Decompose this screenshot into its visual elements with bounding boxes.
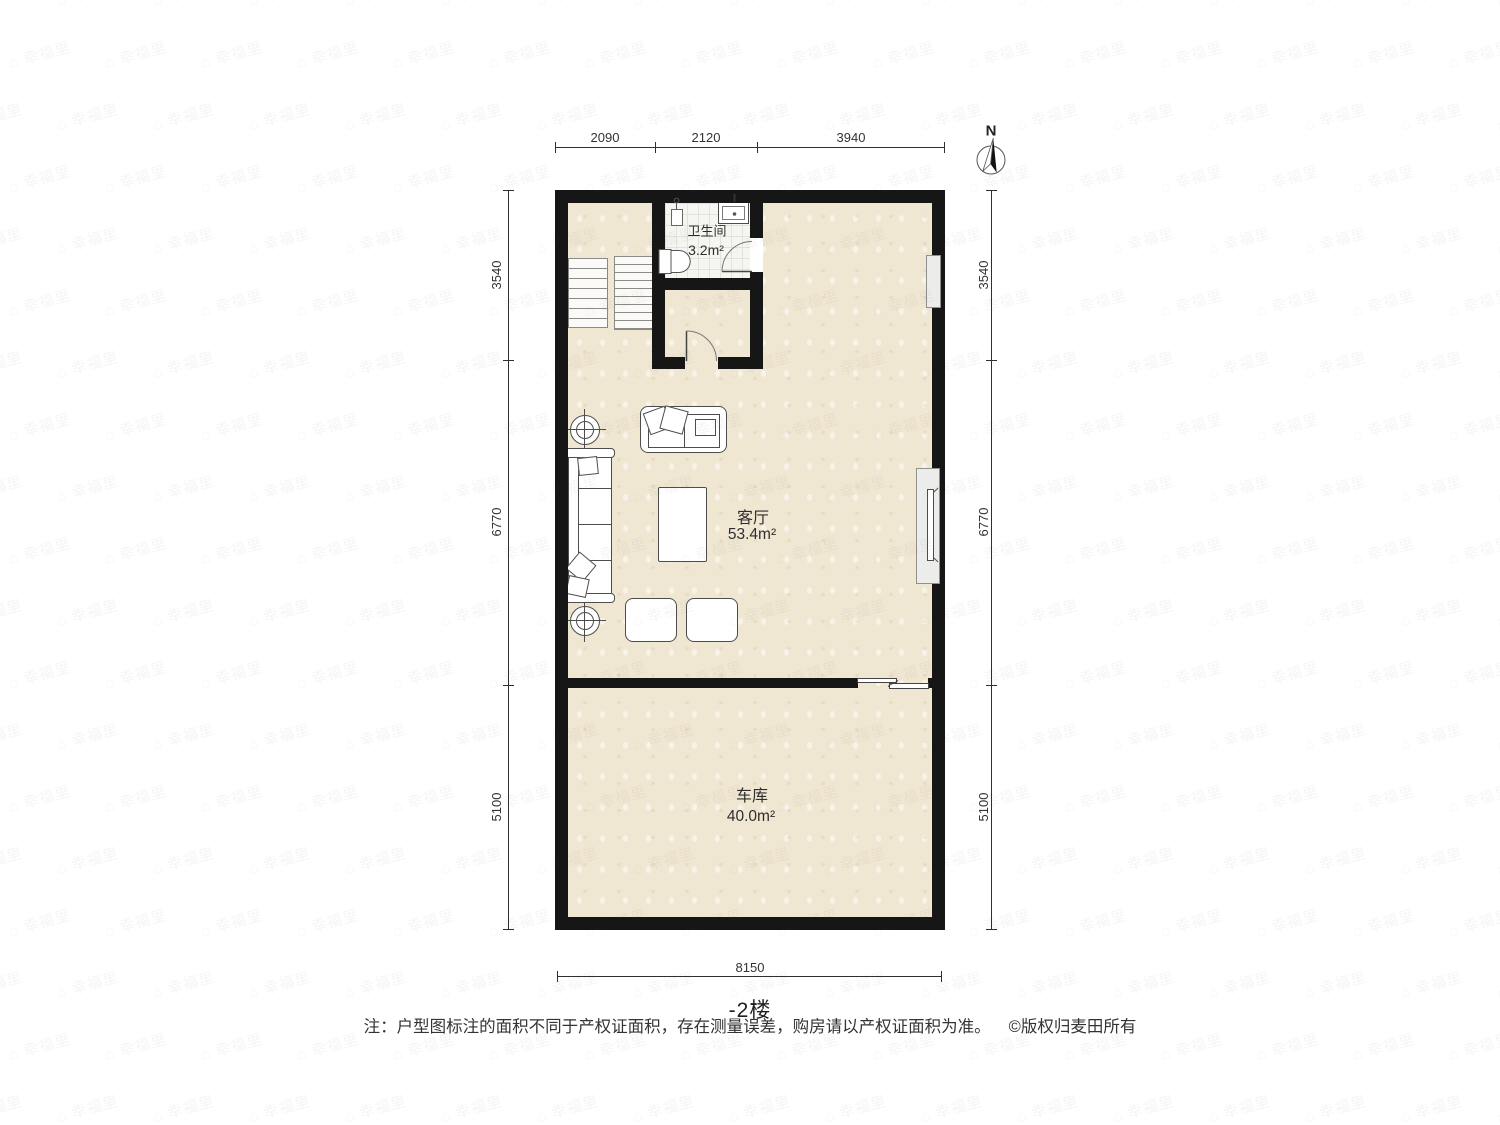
watermark-item: ⌂ 幸福里 bbox=[1062, 284, 1129, 321]
watermark-item: ⌂ 幸福里 bbox=[966, 408, 1033, 445]
watermark-item: ⌂ 幸福里 bbox=[1398, 1090, 1465, 1125]
watermark-item: ⌂ 幸福里 bbox=[486, 656, 553, 693]
room-label-bathroom: 卫生间 bbox=[687, 221, 726, 240]
watermark-item: ⌂ 幸福里 bbox=[342, 346, 409, 383]
watermark-item: ⌂ 幸福里 bbox=[1158, 656, 1225, 693]
floorplan-page: 2090 2120 3940 3540 6770 5100 3540 6770 … bbox=[0, 0, 1500, 1125]
room-area-bathroom: 3.2m² bbox=[688, 242, 724, 258]
watermark-item: ⌂ 幸福里 bbox=[1110, 0, 1177, 11]
watermark-item: ⌂ 幸福里 bbox=[918, 0, 985, 11]
watermark-item: ⌂ 幸福里 bbox=[486, 160, 553, 197]
watermark-item: ⌂ 幸福里 bbox=[1254, 408, 1321, 445]
watermark-item: ⌂ 幸福里 bbox=[1062, 36, 1129, 73]
dim-label: 8150 bbox=[736, 960, 765, 975]
dim-tick bbox=[503, 685, 514, 686]
watermark-item: ⌂ 幸福里 bbox=[1302, 594, 1369, 631]
watermark-item: ⌂ 幸福里 bbox=[726, 0, 793, 11]
watermark-item: ⌂ 幸福里 bbox=[1398, 842, 1465, 879]
watermark-item: ⌂ 幸福里 bbox=[150, 470, 217, 507]
dim-label: 2090 bbox=[591, 130, 620, 145]
watermark-item: ⌂ 幸福里 bbox=[54, 346, 121, 383]
watermark-item: ⌂ 幸福里 bbox=[150, 842, 217, 879]
watermark-item: ⌂ 幸福里 bbox=[1110, 594, 1177, 631]
watermark-item: ⌂ 幸福里 bbox=[6, 284, 73, 321]
watermark-item: ⌂ 幸福里 bbox=[1254, 904, 1321, 941]
dimension-line bbox=[508, 190, 509, 930]
watermark-item: ⌂ 幸福里 bbox=[1014, 1090, 1081, 1125]
wall-bathroom-east-upper bbox=[750, 203, 763, 238]
watermark-item: ⌂ 幸福里 bbox=[1494, 346, 1500, 383]
watermark-item: ⌂ 幸福里 bbox=[1206, 842, 1273, 879]
dim-label: 3540 bbox=[489, 245, 503, 305]
tv-screen bbox=[927, 489, 934, 561]
watermark-item: ⌂ 幸福里 bbox=[1158, 904, 1225, 941]
watermark-item: ⌂ 幸福里 bbox=[246, 470, 313, 507]
watermark-item: ⌂ 幸福里 bbox=[486, 408, 553, 445]
watermark-item: ⌂ 幸福里 bbox=[342, 98, 409, 135]
watermark-item: ⌂ 幸福里 bbox=[1350, 160, 1417, 197]
sofa-pillow bbox=[565, 575, 589, 598]
watermark-item: ⌂ 幸福里 bbox=[342, 718, 409, 755]
watermark-item: ⌂ 幸福里 bbox=[390, 284, 457, 321]
watermark-item: ⌂ 幸福里 bbox=[438, 842, 505, 879]
watermark-item: ⌂ 幸福里 bbox=[1110, 470, 1177, 507]
watermark-item: ⌂ 幸福里 bbox=[342, 222, 409, 259]
watermark-item: ⌂ 幸福里 bbox=[1110, 718, 1177, 755]
watermark-item: ⌂ 幸福里 bbox=[0, 470, 25, 507]
watermark-item: ⌂ 幸福里 bbox=[1494, 98, 1500, 135]
watermark-item: ⌂ 幸福里 bbox=[774, 36, 841, 73]
watermark-item: ⌂ 幸福里 bbox=[1206, 594, 1273, 631]
watermark-item: ⌂ 幸福里 bbox=[486, 36, 553, 73]
watermark-item: ⌂ 幸福里 bbox=[1350, 532, 1417, 569]
watermark-item: ⌂ 幸福里 bbox=[1494, 222, 1500, 259]
wall-smallroom-bottom-right bbox=[718, 357, 763, 369]
watermark-item: ⌂ 幸福里 bbox=[342, 594, 409, 631]
watermark-item: ⌂ 幸福里 bbox=[150, 1090, 217, 1125]
wall-smallroom-bottom-left bbox=[652, 357, 685, 369]
watermark-item: ⌂ 幸福里 bbox=[438, 1090, 505, 1125]
watermark-item: ⌂ 幸福里 bbox=[390, 532, 457, 569]
watermark-item: ⌂ 幸福里 bbox=[1350, 656, 1417, 693]
watermark-item: ⌂ 幸福里 bbox=[1446, 36, 1500, 73]
watermark-item: ⌂ 幸福里 bbox=[0, 842, 25, 879]
watermark-item: ⌂ 幸福里 bbox=[918, 1090, 985, 1125]
watermark-item: ⌂ 幸福里 bbox=[246, 718, 313, 755]
watermark-item: ⌂ 幸福里 bbox=[582, 36, 649, 73]
watermark-item: ⌂ 幸福里 bbox=[1398, 222, 1465, 259]
watermark-item: ⌂ 幸福里 bbox=[1302, 842, 1369, 879]
watermark-item: ⌂ 幸福里 bbox=[54, 1090, 121, 1125]
dimension-left: 3540 6770 5100 bbox=[502, 190, 514, 930]
dim-tick bbox=[986, 929, 997, 930]
dim-label: 5100 bbox=[976, 777, 990, 837]
watermark-item: ⌂ 幸福里 bbox=[1446, 160, 1500, 197]
watermark-item: ⌂ 幸福里 bbox=[198, 780, 265, 817]
watermark-item: ⌂ 幸福里 bbox=[54, 718, 121, 755]
watermark-item: ⌂ 幸福里 bbox=[294, 36, 361, 73]
watermark-item: ⌂ 幸福里 bbox=[1158, 284, 1225, 321]
watermark-item: ⌂ 幸福里 bbox=[1302, 222, 1369, 259]
watermark-item: ⌂ 幸福里 bbox=[246, 1090, 313, 1125]
watermark-item: ⌂ 幸福里 bbox=[0, 98, 25, 135]
watermark-item: ⌂ 幸福里 bbox=[294, 904, 361, 941]
watermark-item: ⌂ 幸福里 bbox=[678, 36, 745, 73]
watermark-item: ⌂ 幸福里 bbox=[6, 656, 73, 693]
watermark-item: ⌂ 幸福里 bbox=[438, 346, 505, 383]
watermark-item: ⌂ 幸福里 bbox=[1110, 842, 1177, 879]
watermark-item: ⌂ 幸福里 bbox=[1110, 1090, 1177, 1125]
wall-outer-bottom bbox=[555, 917, 945, 930]
sofa-headrest-cushion bbox=[577, 456, 599, 476]
dim-tick bbox=[944, 142, 945, 153]
watermark-item: ⌂ 幸福里 bbox=[342, 842, 409, 879]
watermark-item: ⌂ 幸福里 bbox=[102, 532, 169, 569]
watermark-item: ⌂ 幸福里 bbox=[1398, 594, 1465, 631]
watermark-item: ⌂ 幸福里 bbox=[1302, 718, 1369, 755]
watermark-item: ⌂ 幸福里 bbox=[1302, 98, 1369, 135]
sliding-door-panel bbox=[889, 683, 929, 689]
watermark-item: ⌂ 幸福里 bbox=[0, 0, 25, 11]
ottoman bbox=[686, 598, 738, 642]
watermark-item: ⌂ 幸福里 bbox=[6, 904, 73, 941]
watermark-item: ⌂ 幸福里 bbox=[246, 98, 313, 135]
dim-label: 6770 bbox=[489, 492, 503, 552]
watermark-item: ⌂ 幸福里 bbox=[1446, 408, 1500, 445]
watermark-item: ⌂ 幸福里 bbox=[6, 160, 73, 197]
watermark-item: ⌂ 幸福里 bbox=[102, 904, 169, 941]
watermark-item: ⌂ 幸福里 bbox=[102, 160, 169, 197]
watermark-item: ⌂ 幸福里 bbox=[1302, 346, 1369, 383]
dim-label: 6770 bbox=[976, 492, 990, 552]
dim-tick bbox=[503, 360, 514, 361]
watermark-item: ⌂ 幸福里 bbox=[390, 904, 457, 941]
dim-tick bbox=[941, 971, 942, 982]
watermark-item: ⌂ 幸福里 bbox=[966, 160, 1033, 197]
dim-label: 2120 bbox=[692, 130, 721, 145]
watermark-item: ⌂ 幸福里 bbox=[198, 284, 265, 321]
watermark-item: ⌂ 幸福里 bbox=[1254, 656, 1321, 693]
watermark-item: ⌂ 幸福里 bbox=[1398, 98, 1465, 135]
watermark-item: ⌂ 幸福里 bbox=[1302, 470, 1369, 507]
watermark-item: ⌂ 幸福里 bbox=[294, 532, 361, 569]
watermark-item: ⌂ 幸福里 bbox=[966, 36, 1033, 73]
watermark-item: ⌂ 幸福里 bbox=[1254, 160, 1321, 197]
watermark-item: ⌂ 幸福里 bbox=[1158, 780, 1225, 817]
watermark-item: ⌂ 幸福里 bbox=[1014, 842, 1081, 879]
dim-tick bbox=[757, 142, 758, 153]
watermark-item: ⌂ 幸福里 bbox=[0, 718, 25, 755]
watermark-item: ⌂ 幸福里 bbox=[1014, 0, 1081, 11]
watermark-item: ⌂ 幸福里 bbox=[486, 904, 553, 941]
room-label-living: 客厅 bbox=[737, 504, 769, 528]
watermark-item: ⌂ 幸福里 bbox=[294, 408, 361, 445]
watermark-item: ⌂ 幸福里 bbox=[102, 408, 169, 445]
dim-tick bbox=[557, 971, 558, 982]
watermark-item: ⌂ 幸福里 bbox=[630, 0, 697, 11]
watermark-item: ⌂ 幸福里 bbox=[1062, 780, 1129, 817]
watermark-item: ⌂ 幸福里 bbox=[1494, 594, 1500, 631]
dim-tick bbox=[986, 685, 997, 686]
watermark-item: ⌂ 幸福里 bbox=[438, 718, 505, 755]
watermark-item: ⌂ 幸福里 bbox=[1350, 780, 1417, 817]
disclaimer-note: 注：户型图标注的面积不同于产权证面积，存在测量误差，购房请以产权证面积为准。 bbox=[364, 1013, 991, 1037]
dimension-right: 3540 6770 5100 bbox=[985, 190, 997, 930]
watermark-item: ⌂ 幸福里 bbox=[294, 284, 361, 321]
watermark-item: ⌂ 幸福里 bbox=[1446, 284, 1500, 321]
watermark-item: ⌂ 幸福里 bbox=[1206, 718, 1273, 755]
watermark-item: ⌂ 幸福里 bbox=[966, 904, 1033, 941]
shower-fixture bbox=[671, 209, 683, 226]
coffee-table bbox=[658, 487, 707, 562]
watermark-item: ⌂ 幸福里 bbox=[1110, 98, 1177, 135]
footer-note-row: 注：户型图标注的面积不同于产权证面积，存在测量误差，购房请以产权证面积为准。 ©… bbox=[0, 1013, 1500, 1037]
watermark-item: ⌂ 幸福里 bbox=[1062, 408, 1129, 445]
watermark-item: ⌂ 幸福里 bbox=[150, 98, 217, 135]
watermark-item: ⌂ 幸福里 bbox=[0, 222, 25, 259]
watermark-item: ⌂ 幸福里 bbox=[198, 408, 265, 445]
wall-outer-left bbox=[555, 190, 568, 930]
watermark-item: ⌂ 幸福里 bbox=[390, 36, 457, 73]
watermark-item: ⌂ 幸福里 bbox=[438, 594, 505, 631]
side-table-inner-circle bbox=[576, 421, 594, 439]
watermark-item: ⌂ 幸福里 bbox=[1398, 346, 1465, 383]
watermark-item: ⌂ 幸福里 bbox=[246, 346, 313, 383]
dim-tick bbox=[655, 142, 656, 153]
watermark-item: ⌂ 幸福里 bbox=[1398, 0, 1465, 11]
bathroom-door-opening bbox=[750, 238, 763, 272]
watermark-item: ⌂ 幸福里 bbox=[1206, 1090, 1273, 1125]
watermark-item: ⌂ 幸福里 bbox=[54, 222, 121, 259]
watermark-item: ⌂ 幸福里 bbox=[246, 594, 313, 631]
room-area-garage: 40.0m² bbox=[727, 808, 775, 826]
room-area-living: 53.4m² bbox=[728, 526, 776, 544]
watermark-item: ⌂ 幸福里 bbox=[1206, 470, 1273, 507]
dim-label: 3940 bbox=[837, 130, 866, 145]
watermark-item: ⌂ 幸福里 bbox=[102, 780, 169, 817]
wall-niche bbox=[926, 255, 941, 308]
watermark-item: ⌂ 幸福里 bbox=[390, 780, 457, 817]
compass-needle-light bbox=[983, 137, 994, 172]
watermark-item: ⌂ 幸福里 bbox=[150, 222, 217, 259]
watermark-item: ⌂ 幸福里 bbox=[1302, 1090, 1369, 1125]
watermark-item: ⌂ 幸福里 bbox=[1014, 222, 1081, 259]
wall-garage-divider-stub bbox=[928, 678, 945, 688]
watermark-item: ⌂ 幸福里 bbox=[342, 470, 409, 507]
stairs-flight-left bbox=[568, 258, 608, 328]
watermark-item: ⌂ 幸福里 bbox=[54, 0, 121, 11]
watermark-item: ⌂ 幸福里 bbox=[54, 470, 121, 507]
watermark-item: ⌂ 幸福里 bbox=[1254, 36, 1321, 73]
watermark-item: ⌂ 幸福里 bbox=[390, 160, 457, 197]
watermark-item: ⌂ 幸福里 bbox=[1446, 780, 1500, 817]
watermark-item: ⌂ 幸福里 bbox=[1398, 470, 1465, 507]
watermark-item: ⌂ 幸福里 bbox=[246, 222, 313, 259]
loveseat-cushion bbox=[695, 419, 716, 436]
compass-needle bbox=[983, 137, 1000, 172]
dimension-top: 2090 2120 3940 bbox=[555, 130, 945, 154]
dim-label: 5100 bbox=[489, 777, 503, 837]
dimension-line bbox=[555, 147, 945, 148]
wall-smallroom-top bbox=[652, 278, 763, 290]
watermark-item: ⌂ 幸福里 bbox=[198, 532, 265, 569]
dim-tick bbox=[555, 142, 556, 153]
watermark-item: ⌂ 幸福里 bbox=[438, 98, 505, 135]
watermark-item: ⌂ 幸福里 bbox=[150, 346, 217, 383]
wall-garage-divider bbox=[555, 678, 858, 688]
room-label-garage: 车库 bbox=[736, 782, 768, 806]
watermark-item: ⌂ 幸福里 bbox=[390, 408, 457, 445]
watermark-item: ⌂ 幸福里 bbox=[102, 284, 169, 321]
watermark-item: ⌂ 幸福里 bbox=[870, 36, 937, 73]
watermark-item: ⌂ 幸福里 bbox=[1302, 0, 1369, 11]
watermark-item: ⌂ 幸福里 bbox=[1158, 160, 1225, 197]
dimension-line bbox=[557, 976, 941, 977]
watermark-item: ⌂ 幸福里 bbox=[1014, 718, 1081, 755]
watermark-item: ⌂ 幸福里 bbox=[102, 36, 169, 73]
watermark-item: ⌂ 幸福里 bbox=[1206, 346, 1273, 383]
watermark-item: ⌂ 幸福里 bbox=[630, 1090, 697, 1125]
watermark-item: ⌂ 幸福里 bbox=[1494, 470, 1500, 507]
watermark-item: ⌂ 幸福里 bbox=[6, 36, 73, 73]
dimension-bottom: 8150 bbox=[555, 960, 945, 982]
watermark-item: ⌂ 幸福里 bbox=[1398, 718, 1465, 755]
watermark-item: ⌂ 幸福里 bbox=[342, 0, 409, 11]
watermark-item: ⌂ 幸福里 bbox=[198, 904, 265, 941]
watermark-item: ⌂ 幸福里 bbox=[0, 594, 25, 631]
watermark-item: ⌂ 幸福里 bbox=[390, 656, 457, 693]
watermark-item: ⌂ 幸福里 bbox=[534, 1090, 601, 1125]
watermark-item: ⌂ 幸福里 bbox=[438, 0, 505, 11]
watermark-item: ⌂ 幸福里 bbox=[1350, 36, 1417, 73]
watermark-item: ⌂ 幸福里 bbox=[822, 1090, 889, 1125]
watermark-item: ⌂ 幸福里 bbox=[1062, 904, 1129, 941]
watermark-item: ⌂ 幸福里 bbox=[1062, 160, 1129, 197]
watermark-item: ⌂ 幸福里 bbox=[246, 0, 313, 11]
watermark-item: ⌂ 幸福里 bbox=[198, 656, 265, 693]
watermark-item: ⌂ 幸福里 bbox=[198, 36, 265, 73]
watermark-item: ⌂ 幸福里 bbox=[54, 98, 121, 135]
dim-label: 3540 bbox=[976, 245, 990, 305]
watermark-item: ⌂ 幸福里 bbox=[1014, 594, 1081, 631]
sink-basin bbox=[722, 206, 745, 220]
watermark-item: ⌂ 幸福里 bbox=[150, 594, 217, 631]
watermark-item: ⌂ 幸福里 bbox=[294, 656, 361, 693]
watermark-item: ⌂ 幸福里 bbox=[1206, 98, 1273, 135]
watermark-item: ⌂ 幸福里 bbox=[0, 346, 25, 383]
watermark-item: ⌂ 幸福里 bbox=[1254, 532, 1321, 569]
watermark-item: ⌂ 幸福里 bbox=[822, 0, 889, 11]
compass-circle bbox=[977, 146, 1005, 174]
watermark-item: ⌂ 幸福里 bbox=[726, 1090, 793, 1125]
dim-tick bbox=[503, 929, 514, 930]
watermark-item: ⌂ 幸福里 bbox=[1014, 470, 1081, 507]
sofa-cushion-line bbox=[579, 488, 611, 489]
watermark-item: ⌂ 幸福里 bbox=[294, 780, 361, 817]
watermark-item: ⌂ 幸福里 bbox=[1062, 656, 1129, 693]
stairs-flight-right bbox=[614, 256, 653, 330]
watermark-item: ⌂ 幸福里 bbox=[1062, 532, 1129, 569]
dim-tick bbox=[986, 360, 997, 361]
watermark-item: ⌂ 幸福里 bbox=[1446, 904, 1500, 941]
watermark-item: ⌂ 幸福里 bbox=[0, 1090, 25, 1125]
sofa-cushion-line bbox=[579, 524, 611, 525]
watermark-item: ⌂ 幸福里 bbox=[1494, 842, 1500, 879]
watermark-item: ⌂ 幸福里 bbox=[1254, 284, 1321, 321]
compass-needle-dark bbox=[990, 138, 1001, 173]
watermark-item: ⌂ 幸福里 bbox=[1110, 346, 1177, 383]
watermark-item: ⌂ 幸福里 bbox=[6, 408, 73, 445]
watermark-item: ⌂ 幸福里 bbox=[1350, 284, 1417, 321]
watermark-item: ⌂ 幸福里 bbox=[1206, 222, 1273, 259]
watermark-item: ⌂ 幸福里 bbox=[1158, 408, 1225, 445]
dim-tick bbox=[986, 190, 997, 191]
copyright-text: ©版权归麦田所有 bbox=[1009, 1013, 1137, 1037]
dim-tick bbox=[503, 190, 514, 191]
watermark-item: ⌂ 幸福里 bbox=[1494, 1090, 1500, 1125]
watermark-item: ⌂ 幸福里 bbox=[54, 594, 121, 631]
wall-outer-top bbox=[555, 190, 945, 203]
watermark-item: ⌂ 幸福里 bbox=[6, 532, 73, 569]
watermark-item: ⌂ 幸福里 bbox=[150, 718, 217, 755]
watermark-item: ⌂ 幸福里 bbox=[1158, 36, 1225, 73]
watermark-item: ⌂ 幸福里 bbox=[1446, 656, 1500, 693]
watermark-item: ⌂ 幸福里 bbox=[1350, 904, 1417, 941]
watermark-item: ⌂ 幸福里 bbox=[1494, 718, 1500, 755]
watermark-item: ⌂ 幸福里 bbox=[294, 160, 361, 197]
watermark-item: ⌂ 幸福里 bbox=[150, 0, 217, 11]
watermark-item: ⌂ 幸福里 bbox=[246, 842, 313, 879]
watermark-item: ⌂ 幸福里 bbox=[342, 1090, 409, 1125]
watermark-item: ⌂ 幸福里 bbox=[1494, 0, 1500, 11]
watermark-item: ⌂ 幸福里 bbox=[198, 160, 265, 197]
watermark-item: ⌂ 幸福里 bbox=[102, 656, 169, 693]
watermark-item: ⌂ 幸福里 bbox=[54, 842, 121, 879]
watermark-item: ⌂ 幸福里 bbox=[1158, 532, 1225, 569]
watermark-item: ⌂ 幸福里 bbox=[1350, 408, 1417, 445]
ottoman bbox=[625, 598, 677, 642]
side-table-inner-circle bbox=[576, 612, 594, 630]
dimension-line bbox=[991, 190, 992, 930]
watermark-item: ⌂ 幸福里 bbox=[1446, 532, 1500, 569]
watermark-item: ⌂ 幸福里 bbox=[1014, 346, 1081, 383]
watermark-item: ⌂ 幸福里 bbox=[534, 0, 601, 11]
watermark-item: ⌂ 幸福里 bbox=[966, 656, 1033, 693]
watermark-item: ⌂ 幸福里 bbox=[6, 780, 73, 817]
watermark-item: ⌂ 幸福里 bbox=[1014, 98, 1081, 135]
north-label: N bbox=[986, 123, 997, 140]
watermark-item: ⌂ 幸福里 bbox=[1110, 222, 1177, 259]
watermark-item: ⌂ 幸福里 bbox=[1206, 0, 1273, 11]
watermark-item: ⌂ 幸福里 bbox=[1254, 780, 1321, 817]
